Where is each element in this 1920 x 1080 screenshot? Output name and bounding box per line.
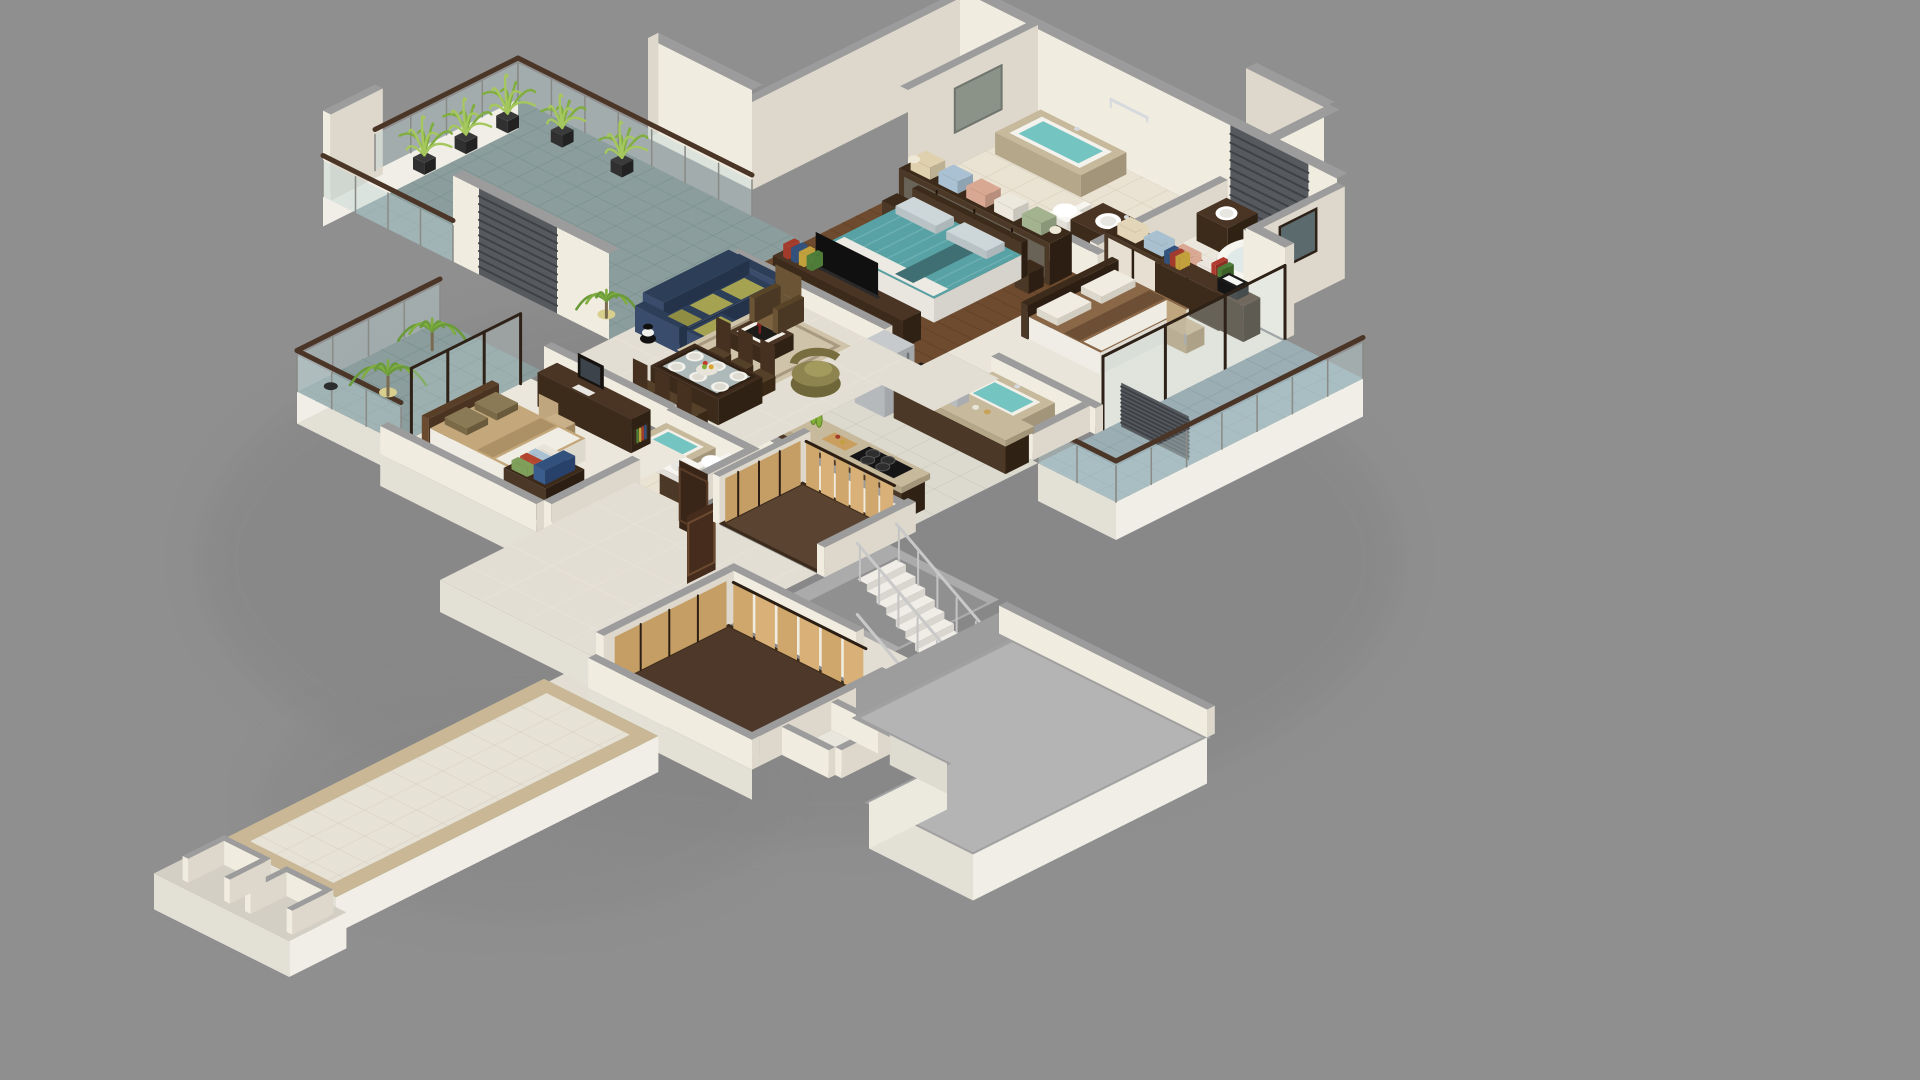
- render-stage: [0, 0, 1920, 1080]
- floor-plan-render: [0, 0, 1920, 1080]
